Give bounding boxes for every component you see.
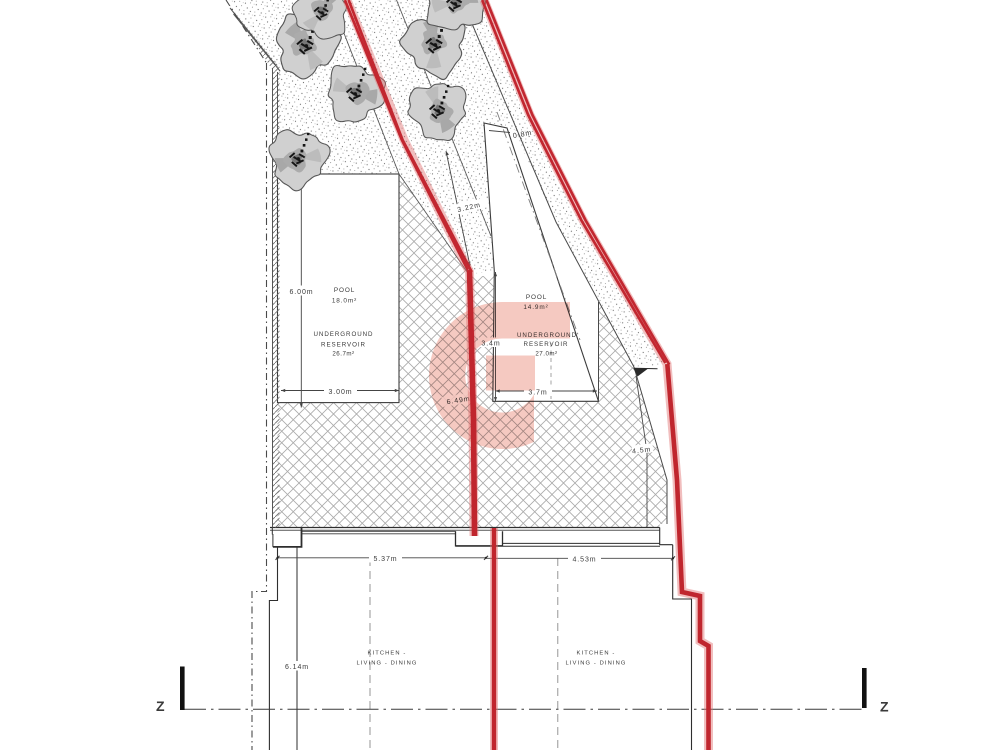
svg-text:18.0m²: 18.0m² xyxy=(332,298,357,305)
svg-text:POOL: POOL xyxy=(526,294,547,301)
svg-text:Z: Z xyxy=(156,698,165,714)
svg-text:3.7m: 3.7m xyxy=(528,390,547,397)
svg-text:LIVING - DINING: LIVING - DINING xyxy=(566,661,627,667)
svg-text:POOL: POOL xyxy=(334,287,355,294)
svg-text:27.0m²: 27.0m² xyxy=(535,350,557,357)
svg-text:3.00m: 3.00m xyxy=(329,389,353,396)
svg-text:UNDERGROUND: UNDERGROUND xyxy=(314,331,374,338)
svg-text:4.53m: 4.53m xyxy=(573,557,597,564)
svg-text:LIVING - DINING: LIVING - DINING xyxy=(357,661,418,667)
svg-text:KITCHEN -: KITCHEN - xyxy=(577,651,616,657)
svg-text:6.00m: 6.00m xyxy=(290,289,314,296)
svg-text:5.37m: 5.37m xyxy=(374,556,398,563)
svg-text:RESERVOIR: RESERVOIR xyxy=(524,341,569,348)
svg-text:RESERVOIR: RESERVOIR xyxy=(321,341,366,348)
svg-text:KITCHEN -: KITCHEN - xyxy=(368,651,407,657)
svg-text:6.14m: 6.14m xyxy=(285,664,309,671)
svg-text:26.7m²: 26.7m² xyxy=(332,351,354,358)
svg-text:Z: Z xyxy=(880,699,889,715)
